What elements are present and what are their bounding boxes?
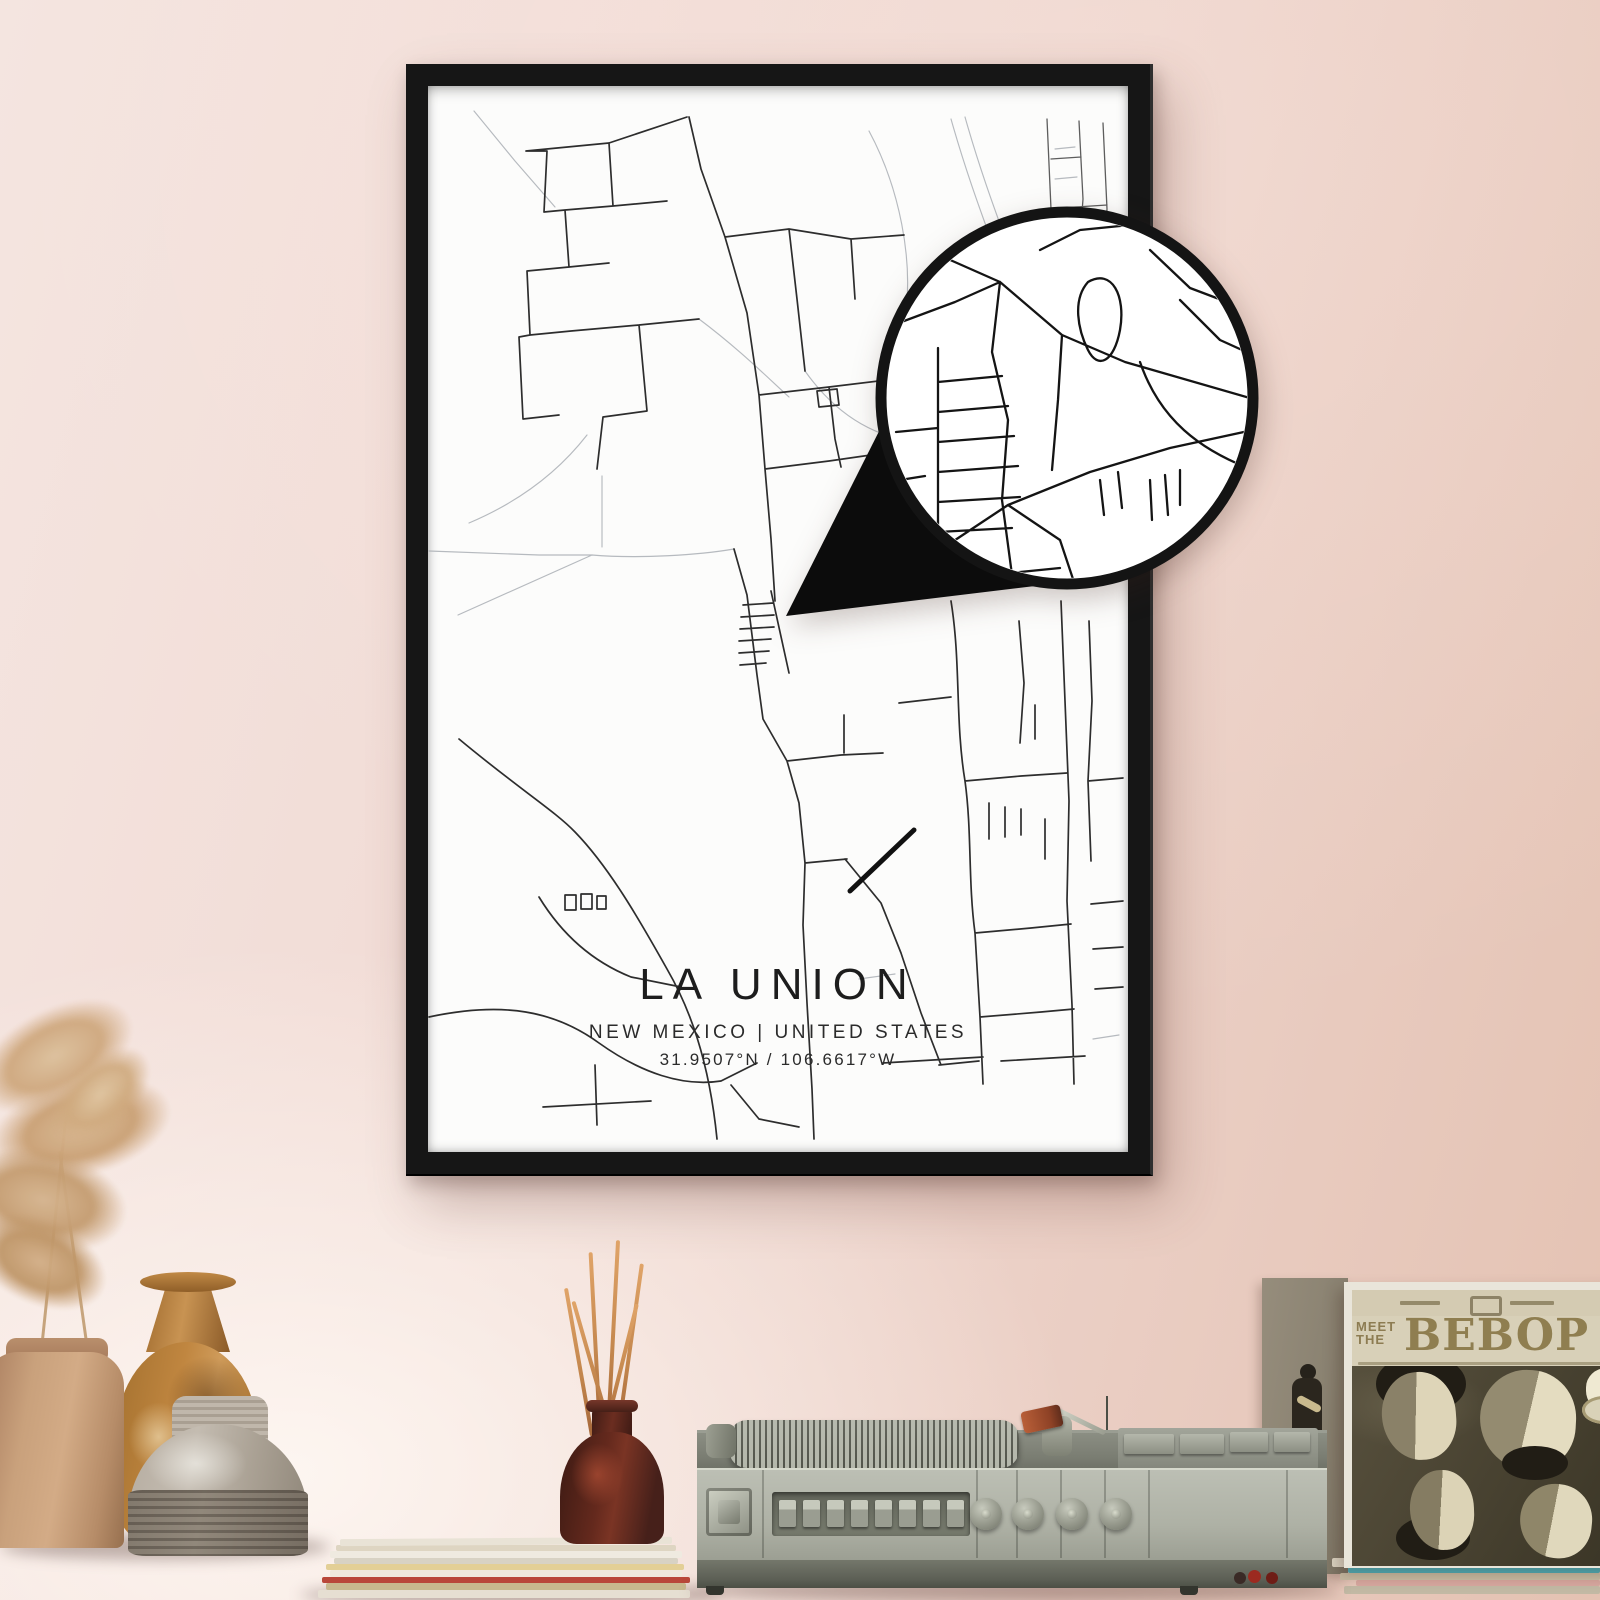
turntable-platter [729,1420,1019,1468]
tan-vase [0,1352,124,1548]
preset-button [803,1500,820,1527]
panel-seam [762,1470,764,1558]
record-sleeve-edge [1340,1573,1600,1580]
preset-button [875,1500,892,1527]
album-fine-print [1510,1301,1554,1305]
record-player-foot [1180,1586,1198,1595]
magazine-layer [322,1577,690,1583]
record-label-logo [1470,1296,1502,1316]
album-cover: MEET THE BEBOP [1344,1282,1600,1568]
power-button [718,1500,740,1524]
rotary-knob [1012,1498,1044,1530]
poster-title: LA UNION [428,960,1128,1010]
album-fine-print [1358,1362,1600,1365]
album-title-main: BEBOP [1404,1316,1589,1360]
preset-button-strip [772,1492,970,1536]
record-player-base [697,1560,1327,1588]
preset-button [827,1500,844,1527]
album-art [1352,1366,1600,1566]
preset-button [947,1500,964,1527]
magazine-layer [330,1570,682,1577]
deck-key [1274,1432,1310,1452]
antenna [1106,1396,1108,1430]
red-knob [1266,1572,1278,1584]
poster-coordinates: 31.9507°N / 106.6617°W [428,1050,1128,1070]
album-title-the: THE [1356,1333,1396,1346]
magazine-layer [330,1551,682,1558]
album-logo-oval [1582,1396,1600,1424]
panel-seam [1148,1470,1150,1558]
diffuser-bottle-rim [586,1400,638,1412]
poster-subtitle: NEW MEXICO | UNITED STATES [428,1022,1128,1044]
deck-key [1180,1434,1224,1454]
deck-key [1124,1434,1174,1454]
magazine-layer [326,1564,684,1570]
magazine-layer [318,1590,690,1598]
rotary-knob [970,1498,1002,1530]
gray-vase-ribs [128,1490,308,1556]
diffuser-bottle [560,1432,664,1544]
magazine-layer [334,1558,678,1564]
panel-seam [1286,1470,1288,1558]
red-knob [1248,1570,1261,1583]
dark-knob [1234,1572,1246,1584]
preset-button [851,1500,868,1527]
album-title-meet-the: MEET THE [1356,1320,1396,1346]
character-hair [1502,1446,1568,1480]
magazine-layer [336,1545,676,1551]
control-key-panel [1118,1428,1318,1470]
product-photo-scene: LA UNION NEW MEXICO | UNITED STATES 31.9… [0,0,1600,1600]
rotary-knob [1100,1498,1132,1530]
deck-key [1230,1432,1268,1452]
zoom-callout [735,165,1280,640]
album-top-strip [1352,1290,1600,1316]
preset-button [923,1500,940,1527]
platter-side-knob [706,1424,736,1458]
record-sleeve-edge [1344,1586,1600,1594]
preset-button [899,1500,916,1527]
album-fine-print [1400,1301,1440,1305]
record-player-foot [706,1586,724,1595]
zoom-circle [881,212,1253,584]
album-title-row: MEET THE BEBOP [1352,1316,1600,1360]
amber-vase-rim [140,1272,236,1292]
rotary-knob [1056,1498,1088,1530]
character-face [1516,1480,1595,1561]
preset-button [779,1500,796,1527]
magazine-layer [326,1583,686,1590]
